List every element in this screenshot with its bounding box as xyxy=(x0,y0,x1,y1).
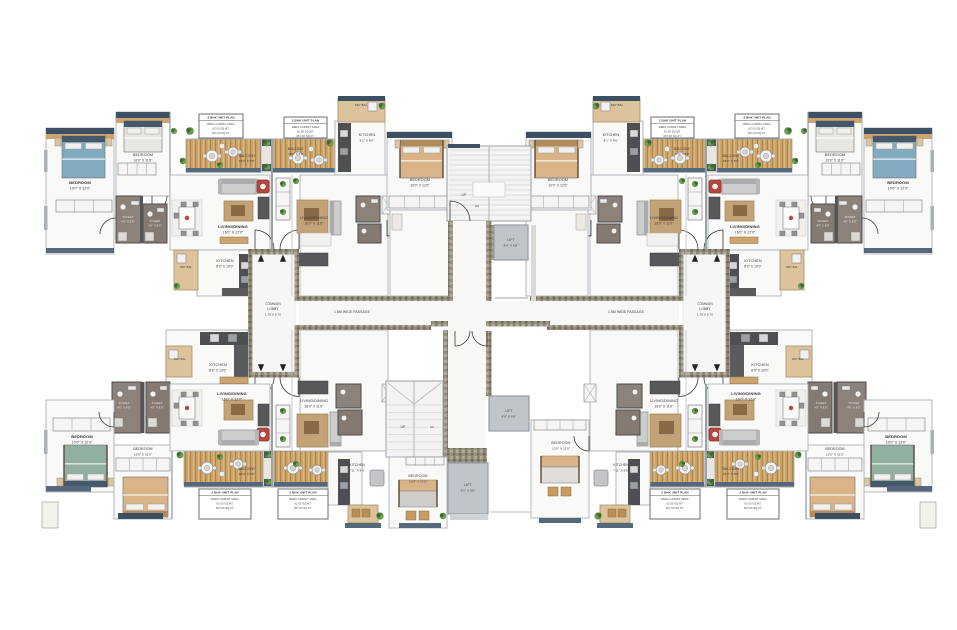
svg-text:667.00 SQ.FT.: 667.00 SQ.FT. xyxy=(748,131,766,135)
svg-text:TOILET: TOILET xyxy=(149,219,160,223)
svg-text:DRY BAL: DRY BAL xyxy=(180,265,192,269)
svg-text:667.00 SQ.FT.: 667.00 SQ.FT. xyxy=(212,131,230,135)
svg-text:RERA CARPET AREA: RERA CARPET AREA xyxy=(207,122,235,126)
svg-text:667.00 SQ.FT.: 667.00 SQ.FT. xyxy=(294,506,312,510)
svg-text:8'0" X 6'8": 8'0" X 6'8" xyxy=(502,415,517,419)
svg-text:DRY BAL: DRY BAL xyxy=(355,103,368,107)
svg-text:BEDROOM: BEDROOM xyxy=(825,447,844,451)
svg-text:4'0" X 8'0": 4'0" X 8'0" xyxy=(117,406,130,410)
svg-text:1.75 X 6.75: 1.75 X 6.75 xyxy=(697,313,713,317)
svg-text:2 BHK UNIT PLAN: 2 BHK UNIT PLAN xyxy=(211,491,238,495)
svg-text:BEDROOM: BEDROOM xyxy=(551,441,570,445)
svg-text:7'11" X 8'0": 7'11" X 8'0" xyxy=(349,469,365,473)
svg-text:16'0" X 11'0": 16'0" X 11'0" xyxy=(304,405,323,409)
svg-text:BEDROOM: BEDROOM xyxy=(133,447,152,451)
svg-text:LOBBY: LOBBY xyxy=(699,307,711,311)
svg-text:18'0" X 5'0": 18'0" X 5'0" xyxy=(239,472,256,476)
svg-text:2 BHK UNIT PLAN: 2 BHK UNIT PLAN xyxy=(661,491,688,495)
svg-text:BALCONY: BALCONY xyxy=(288,147,305,151)
svg-text:62.00 SQ.MT.: 62.00 SQ.MT. xyxy=(297,130,314,134)
svg-text:18'0" X 5'0": 18'0" X 5'0" xyxy=(239,159,256,163)
svg-text:BALCONY: BALCONY xyxy=(723,467,741,471)
svg-text:TOILET: TOILET xyxy=(817,219,828,223)
svg-text:4'0" X 8'0": 4'0" X 8'0" xyxy=(816,224,829,228)
svg-text:16'0" X 11'0": 16'0" X 11'0" xyxy=(304,222,323,226)
svg-text:RERA CARPET AREA: RERA CARPET AREA xyxy=(661,497,689,501)
svg-text:TOILET: TOILET xyxy=(844,215,855,219)
svg-text:10'0" X 5'0": 10'0" X 5'0" xyxy=(288,152,303,156)
svg-text:LIFT: LIFT xyxy=(505,409,512,413)
svg-text:KITCHEN: KITCHEN xyxy=(216,259,234,263)
svg-text:DN: DN xyxy=(475,204,480,208)
svg-text:667.00 SQ.FT.: 667.00 SQ.FT. xyxy=(666,506,684,510)
svg-text:16'0" X 11'0": 16'0" X 11'0" xyxy=(654,222,673,226)
svg-text:62.00 SQ.MT.: 62.00 SQ.MT. xyxy=(666,502,683,506)
svg-text:LIFT: LIFT xyxy=(507,238,514,242)
svg-text:KITCHEN: KITCHEN xyxy=(751,363,769,367)
svg-text:18'0" X 5'0": 18'0" X 5'0" xyxy=(723,159,740,163)
svg-text:10'0" X 11'0": 10'0" X 11'0" xyxy=(552,447,570,451)
svg-text:RERA CARPET AREA: RERA CARPET AREA xyxy=(289,497,317,501)
svg-text:KITCHEN: KITCHEN xyxy=(603,133,620,137)
svg-text:2 BHK UNIT PLAN: 2 BHK UNIT PLAN xyxy=(739,491,766,495)
svg-text:4'0" X 8'0": 4'0" X 8'0" xyxy=(121,220,134,224)
svg-text:62.00 SQ.MT.: 62.00 SQ.MT. xyxy=(216,502,233,506)
svg-text:DRY BAL: DRY BAL xyxy=(174,357,186,361)
svg-text:10'0" X 11'0": 10'0" X 11'0" xyxy=(133,159,152,163)
svg-text:10'0" X 12'0": 10'0" X 12'0" xyxy=(410,184,429,188)
svg-text:LIVING/DINING: LIVING/DINING xyxy=(300,216,328,220)
svg-text:10'0" X 11'0": 10'0" X 11'0" xyxy=(826,453,844,457)
svg-text:8'0" X 10'0": 8'0" X 10'0" xyxy=(216,265,233,269)
svg-text:1.5M WIDE PASSAGE: 1.5M WIDE PASSAGE xyxy=(608,310,645,314)
svg-text:62.00 SQ.MT.: 62.00 SQ.MT. xyxy=(212,127,229,131)
svg-text:RERA CARPET AREA: RERA CARPET AREA xyxy=(292,125,320,129)
svg-text:KITCHEN: KITCHEN xyxy=(613,463,629,467)
svg-text:10'0" X 12'0": 10'0" X 12'0" xyxy=(70,187,91,191)
svg-text:LIVING/DINING: LIVING/DINING xyxy=(217,391,247,396)
svg-text:4'0" X 8'0": 4'0" X 8'0" xyxy=(148,224,161,228)
svg-text:4'0" X 8'0": 4'0" X 8'0" xyxy=(843,220,856,224)
svg-text:BEDROOM: BEDROOM xyxy=(885,434,907,439)
svg-text:BEDROOM: BEDROOM xyxy=(408,474,427,478)
svg-text:LIFT: LIFT xyxy=(464,483,471,487)
svg-text:BEDROOM: BEDROOM xyxy=(548,178,568,182)
svg-text:10'0" X 11'0": 10'0" X 11'0" xyxy=(409,480,427,484)
svg-text:LOBBY: LOBBY xyxy=(267,307,279,311)
svg-text:UP: UP xyxy=(401,425,407,429)
svg-text:COMMON: COMMON xyxy=(697,302,713,306)
svg-text:BEDROOM: BEDROOM xyxy=(69,180,91,185)
svg-text:667.00 SQ.FT.: 667.00 SQ.FT. xyxy=(216,506,234,510)
svg-text:UP: UP xyxy=(462,193,468,197)
svg-text:18'0" X 5'0": 18'0" X 5'0" xyxy=(723,472,740,476)
svg-text:DN: DN xyxy=(430,425,435,429)
svg-text:16'0" X 12'0": 16'0" X 12'0" xyxy=(222,398,243,402)
svg-text:8'0" X 10'0": 8'0" X 10'0" xyxy=(209,369,226,373)
svg-text:RERA CARPET AREA: RERA CARPET AREA xyxy=(743,122,771,126)
svg-text:8'0" X 6'8": 8'0" X 6'8" xyxy=(461,489,476,493)
svg-text:8'0" X 6'8": 8'0" X 6'8" xyxy=(504,244,519,248)
svg-text:2 BHK UNIT PLAN: 2 BHK UNIT PLAN xyxy=(659,119,686,123)
svg-text:LIVING/DINING: LIVING/DINING xyxy=(731,391,761,396)
svg-text:667.00 SQ.FT.: 667.00 SQ.FT. xyxy=(744,506,762,510)
svg-text:16'0" X 11'0": 16'0" X 11'0" xyxy=(654,405,673,409)
svg-text:10'0" X 12'0": 10'0" X 12'0" xyxy=(72,441,93,445)
svg-text:TOILET: TOILET xyxy=(848,401,859,405)
svg-text:BALCONY: BALCONY xyxy=(723,154,741,158)
svg-text:DRY BAL: DRY BAL xyxy=(786,265,798,269)
svg-text:RERA CARPET AREA: RERA CARPET AREA xyxy=(659,125,687,129)
svg-text:667.00 SQ.FT.: 667.00 SQ.FT. xyxy=(663,134,681,138)
svg-text:10'0" X 11'0": 10'0" X 11'0" xyxy=(825,159,844,163)
svg-text:RERA CARPET AREA: RERA CARPET AREA xyxy=(211,497,239,501)
svg-text:10'0" X 5'0": 10'0" X 5'0" xyxy=(674,152,689,156)
svg-text:8'1" X 8'0": 8'1" X 8'0" xyxy=(604,139,619,143)
svg-text:BEDROOM: BEDROOM xyxy=(71,434,93,439)
svg-text:4'0" X 8'0": 4'0" X 8'0" xyxy=(847,406,860,410)
svg-text:62.00 SQ.MT.: 62.00 SQ.MT. xyxy=(664,130,681,134)
svg-text:KITCHEN: KITCHEN xyxy=(349,463,365,467)
svg-text:62.00 SQ.MT.: 62.00 SQ.MT. xyxy=(748,127,765,131)
svg-text:LIVING/DINING: LIVING/DINING xyxy=(650,216,678,220)
svg-text:LIVING/DINING: LIVING/DINING xyxy=(730,224,760,229)
svg-text:BALCONY: BALCONY xyxy=(674,147,691,151)
svg-text:1.5M WIDE PASSAGE: 1.5M WIDE PASSAGE xyxy=(334,310,371,314)
svg-text:2 BHK UNIT PLAN: 2 BHK UNIT PLAN xyxy=(292,119,319,123)
svg-text:62.00 SQ.MT.: 62.00 SQ.MT. xyxy=(294,502,311,506)
svg-text:BALCONY: BALCONY xyxy=(239,467,257,471)
svg-text:4'0" X 8'0": 4'0" X 8'0" xyxy=(814,406,827,410)
svg-text:LIVING/DINING: LIVING/DINING xyxy=(650,399,678,403)
svg-text:8'0" X 10'0": 8'0" X 10'0" xyxy=(751,369,768,373)
svg-text:TOILET: TOILET xyxy=(118,401,129,405)
svg-text:7'11" X 8'0": 7'11" X 8'0" xyxy=(613,469,629,473)
svg-text:BEDROOM: BEDROOM xyxy=(825,153,845,157)
svg-text:4'0" X 8'0": 4'0" X 8'0" xyxy=(150,406,163,410)
svg-text:16'0" X 12'0": 16'0" X 12'0" xyxy=(223,231,244,235)
svg-text:16'0" X 12'0": 16'0" X 12'0" xyxy=(735,231,756,235)
svg-text:8'0" X 10'0": 8'0" X 10'0" xyxy=(744,265,761,269)
svg-text:2 BHK UNIT PLAN: 2 BHK UNIT PLAN xyxy=(207,116,234,120)
svg-text:62.00 SQ.MT.: 62.00 SQ.MT. xyxy=(744,502,761,506)
svg-text:10'0" X 12'0": 10'0" X 12'0" xyxy=(886,441,907,445)
svg-text:DRY BAL: DRY BAL xyxy=(611,103,624,107)
svg-text:10'0" X 12'0": 10'0" X 12'0" xyxy=(888,187,909,191)
svg-text:16'0" X 12'0": 16'0" X 12'0" xyxy=(736,398,757,402)
svg-text:DRY BAL: DRY BAL xyxy=(792,357,804,361)
svg-text:10'0" X 12'0": 10'0" X 12'0" xyxy=(548,184,567,188)
svg-text:COMMON: COMMON xyxy=(265,302,281,306)
svg-text:TOILET: TOILET xyxy=(122,215,133,219)
svg-text:2 BHK UNIT PLAN: 2 BHK UNIT PLAN xyxy=(289,491,316,495)
svg-text:1.75 X 6.75: 1.75 X 6.75 xyxy=(265,313,281,317)
svg-text:TOILET: TOILET xyxy=(815,401,826,405)
svg-text:KITCHEN: KITCHEN xyxy=(359,133,376,137)
svg-text:LIVING/DINING: LIVING/DINING xyxy=(300,399,328,403)
svg-text:BEDROOM: BEDROOM xyxy=(887,180,909,185)
svg-text:BEDROOM: BEDROOM xyxy=(410,178,430,182)
svg-text:LIVING/DINING: LIVING/DINING xyxy=(218,224,248,229)
svg-text:10'0" X 11'0": 10'0" X 11'0" xyxy=(134,453,152,457)
svg-text:KITCHEN: KITCHEN xyxy=(209,363,227,367)
svg-text:TOILET: TOILET xyxy=(151,401,162,405)
svg-text:2 BHK UNIT PLAN: 2 BHK UNIT PLAN xyxy=(743,116,770,120)
svg-text:RERA CARPET AREA: RERA CARPET AREA xyxy=(739,497,767,501)
svg-text:667.00 SQ.FT.: 667.00 SQ.FT. xyxy=(296,134,314,138)
svg-text:BALCONY: BALCONY xyxy=(239,154,257,158)
svg-text:BEDROOM: BEDROOM xyxy=(133,153,153,157)
svg-text:8'1" X 8'0": 8'1" X 8'0" xyxy=(360,139,375,143)
svg-text:KITCHEN: KITCHEN xyxy=(744,259,762,263)
